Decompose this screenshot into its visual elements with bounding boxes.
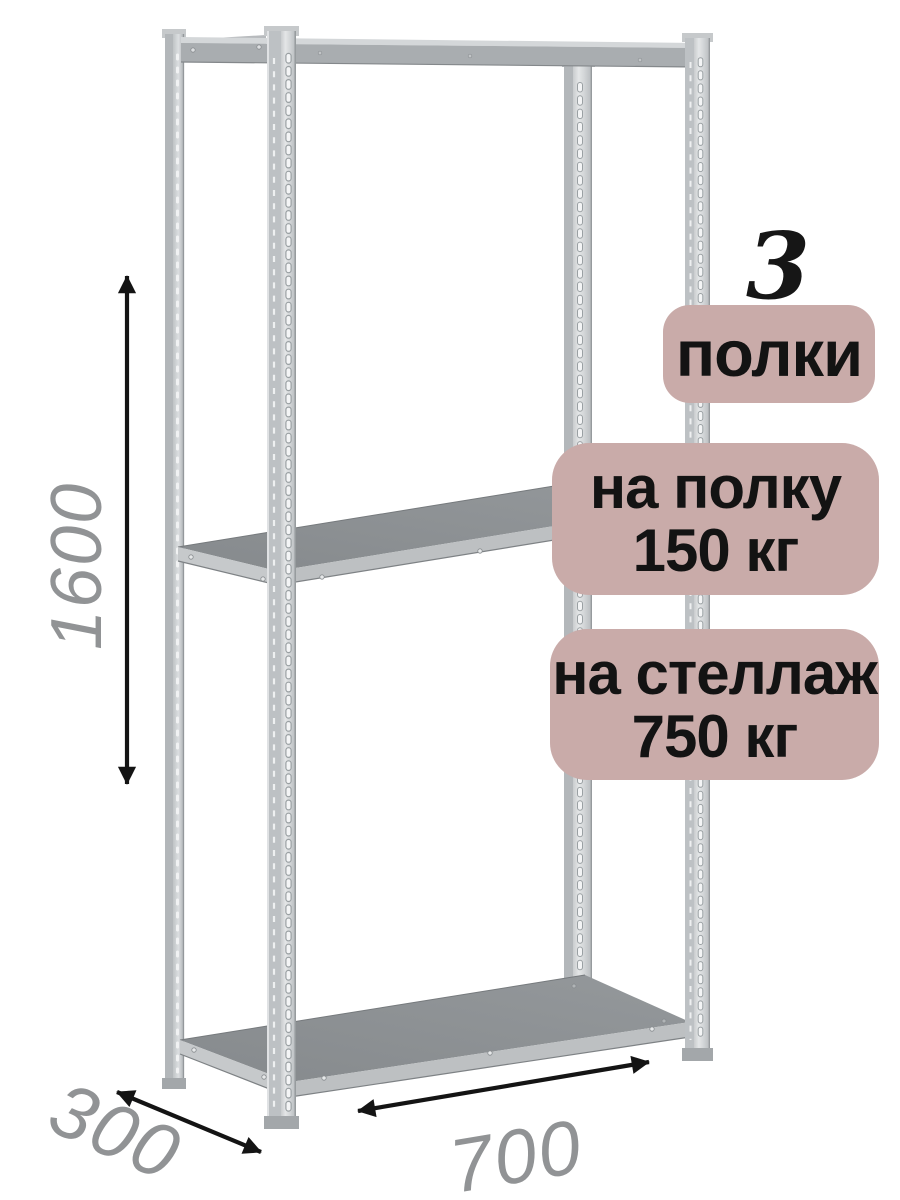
rack-illustration: 1600 300 700 [0,0,900,1200]
width-dimension-label: 700 [444,1104,589,1200]
shelf-count-badge: полки [663,305,875,403]
total-load-badge: на стеллаж 750 кг [550,629,879,780]
bottom-shelf [180,975,690,1097]
shelf-count-label: полки [676,305,862,403]
per-shelf-load-badge: на полку 150 кг [552,443,879,595]
top-shelf [181,35,696,67]
total-load-line1: на стеллаж [552,642,877,705]
shelf-count-number: 3 [730,218,826,314]
post-front-left [264,26,299,1129]
height-dimension-label: 1600 [37,482,117,650]
total-load-line2: 750 кг [632,705,798,768]
per-shelf-load-line2: 150 кг [633,519,799,582]
per-shelf-load-line1: на полку [590,456,841,519]
product-image: 1600 300 700 3 полки на полку 150 кг на … [0,0,900,1200]
